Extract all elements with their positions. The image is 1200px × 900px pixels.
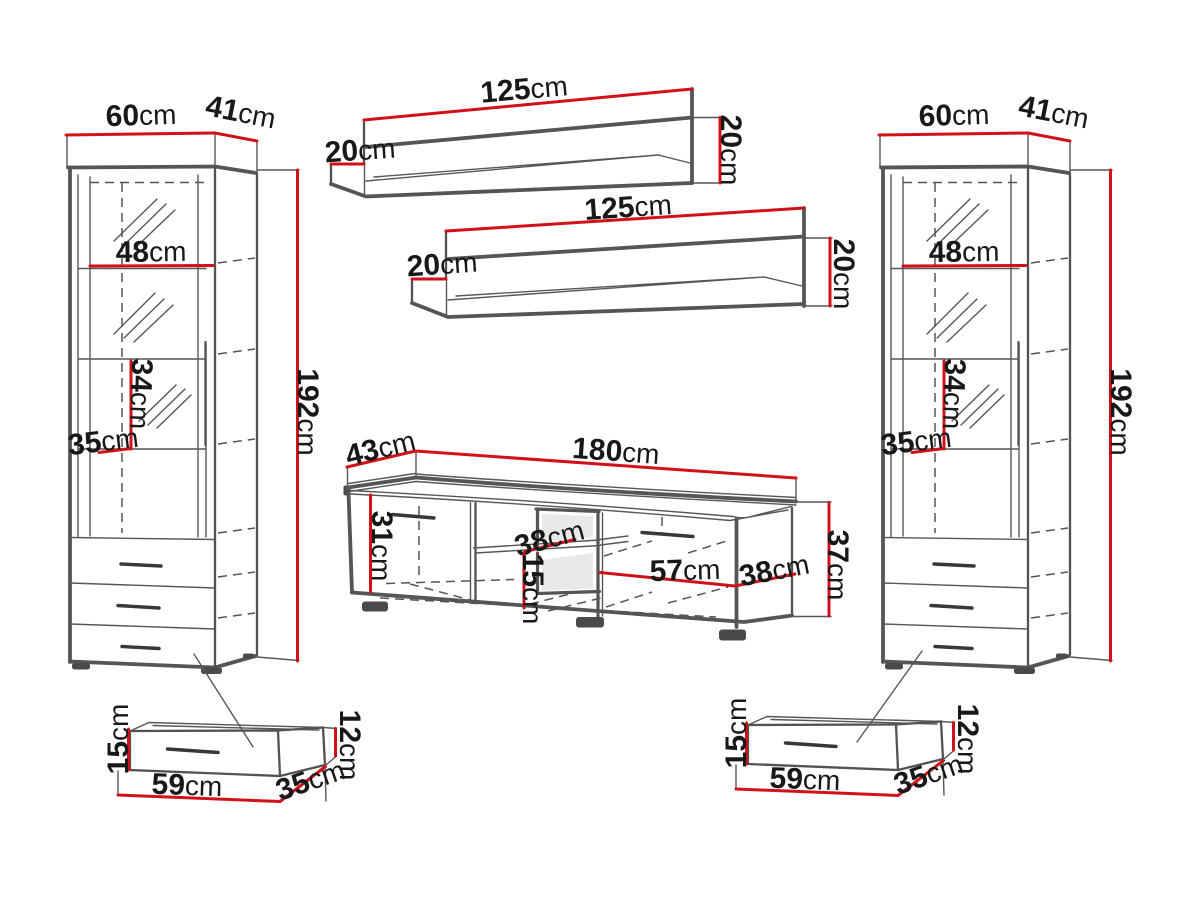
svg-text:48cm: 48cm [115, 235, 186, 269]
svg-text:192cm: 192cm [291, 368, 324, 455]
svg-text:31cm: 31cm [365, 511, 398, 582]
svg-text:20cm: 20cm [406, 246, 479, 284]
svg-text:20cm: 20cm [324, 132, 397, 170]
svg-text:59cm: 59cm [151, 768, 223, 803]
svg-text:12cm: 12cm [333, 710, 366, 781]
svg-text:15cm: 15cm [516, 554, 549, 625]
svg-text:37cm: 37cm [821, 530, 854, 601]
svg-text:20cm: 20cm [714, 115, 747, 186]
svg-text:34cm: 34cm [123, 358, 158, 430]
svg-text:57cm: 57cm [649, 553, 721, 588]
svg-text:20cm: 20cm [827, 239, 860, 310]
svg-text:15cm: 15cm [102, 704, 135, 775]
svg-text:180cm: 180cm [571, 432, 660, 471]
svg-text:60cm: 60cm [105, 98, 177, 133]
